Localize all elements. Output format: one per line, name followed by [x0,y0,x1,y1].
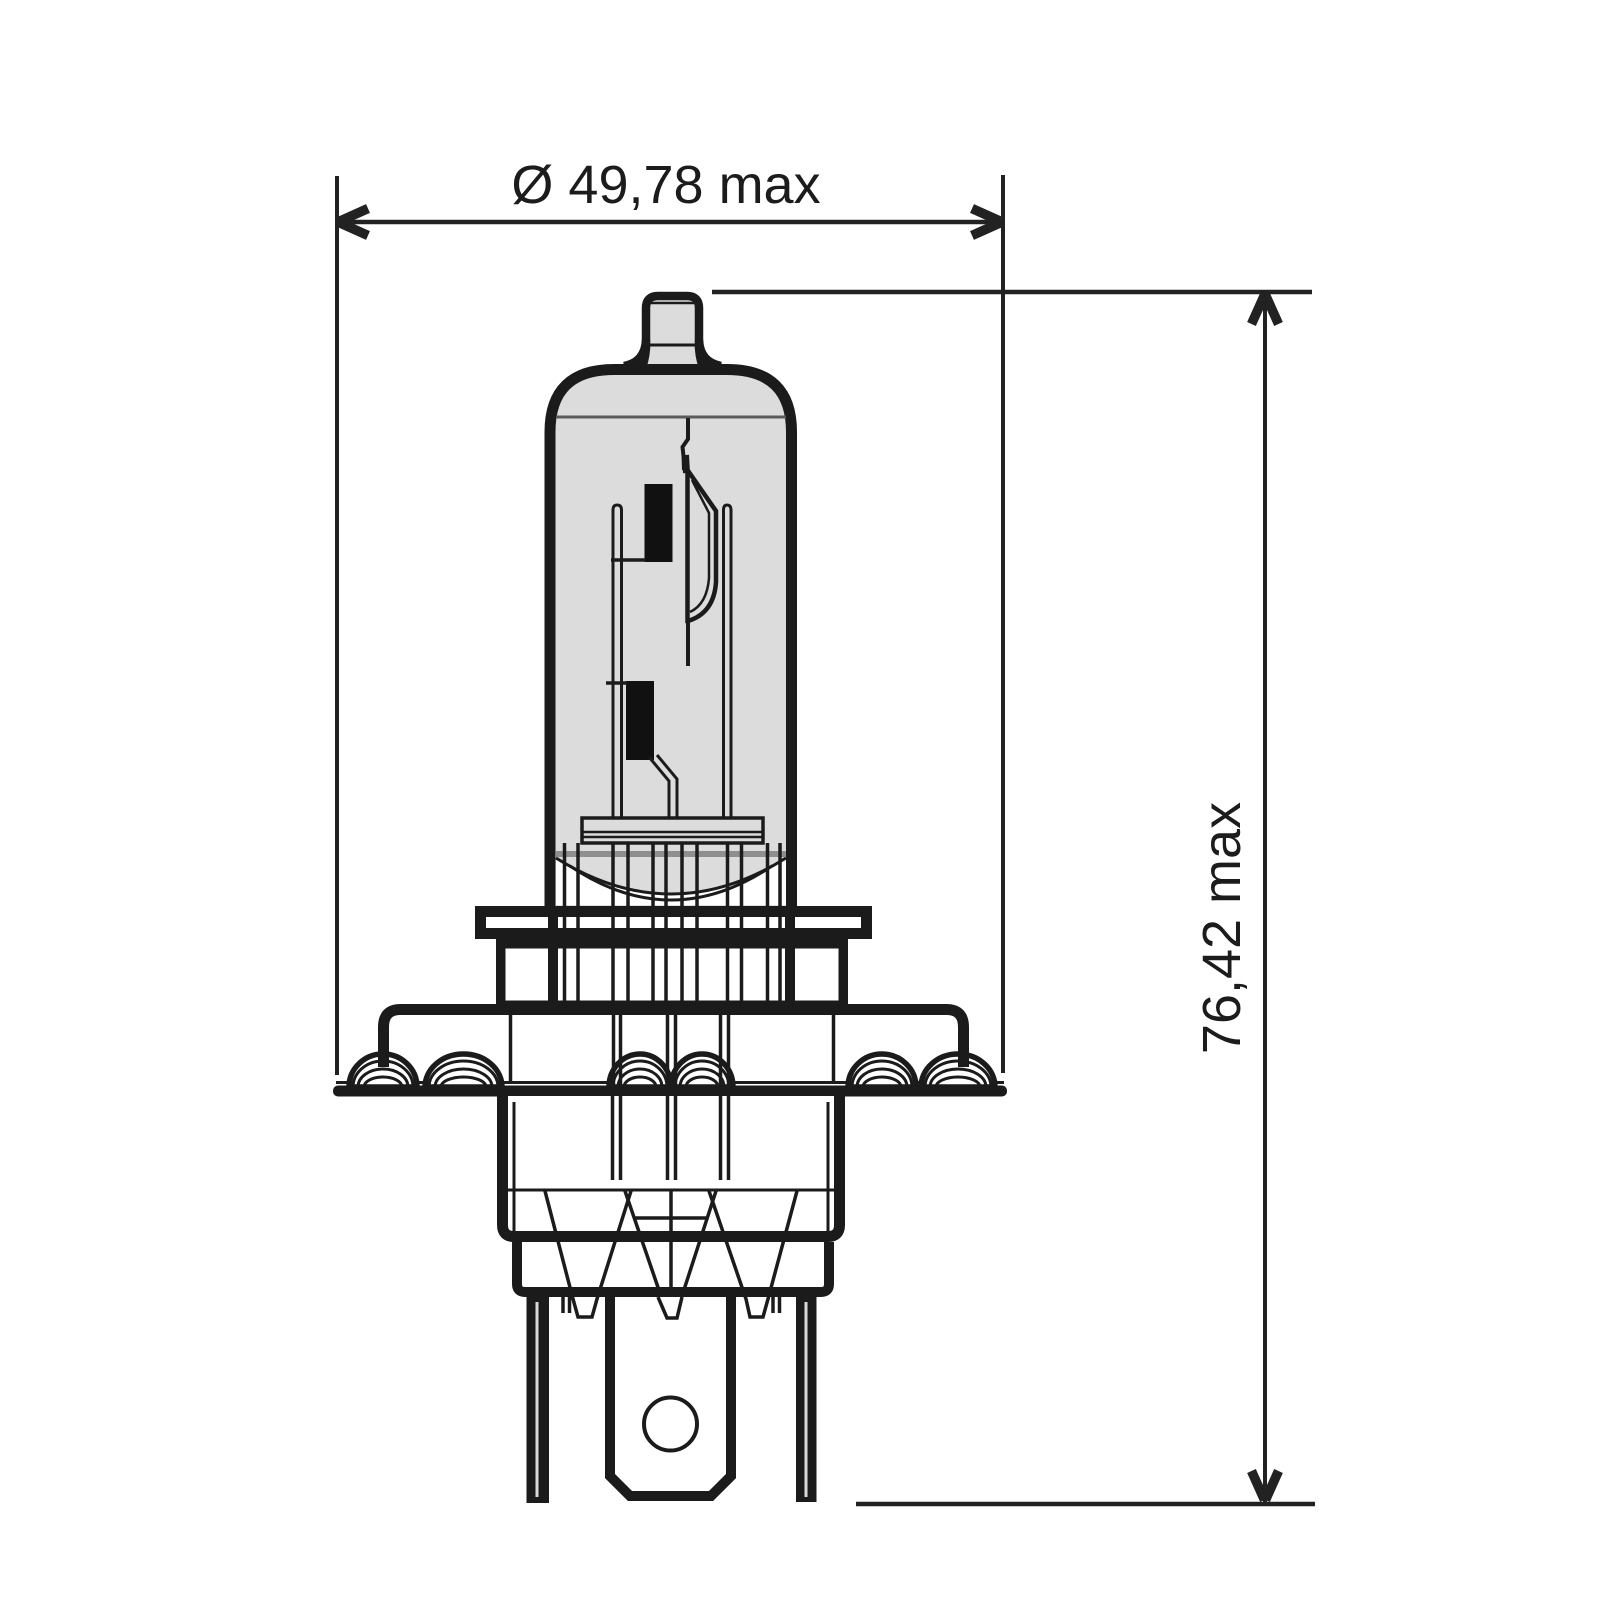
svg-text:76,42 max: 76,42 max [1192,802,1252,1054]
svg-text:Ø 49,78 max: Ø 49,78 max [511,155,820,215]
